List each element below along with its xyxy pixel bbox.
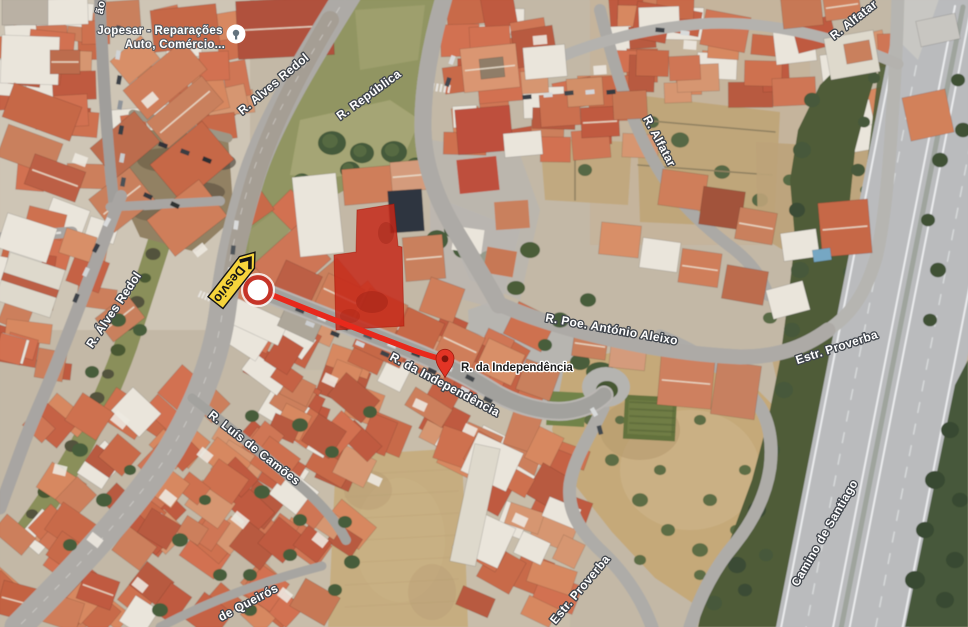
svg-text:R. da Independência: R. da Independência <box>461 362 573 374</box>
svg-text:Jopesar - Reparações: Jopesar - Reparações <box>97 25 223 37</box>
svg-text:Auto, Comércio...: Auto, Comércio... <box>125 39 225 51</box>
